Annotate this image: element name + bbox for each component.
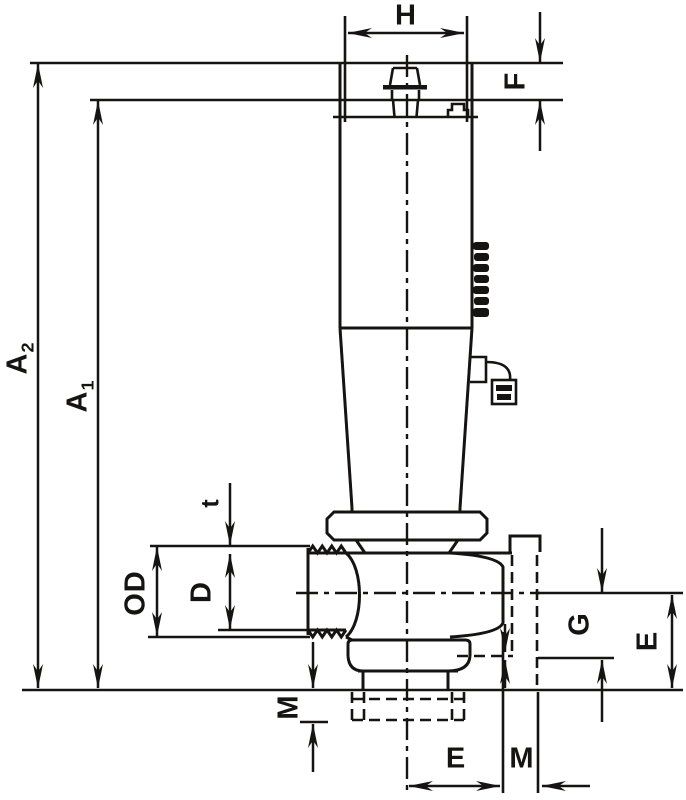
technical-drawing-page: H F A2 A1 t OD D M G E E M [0,0,686,800]
technical-drawing [0,0,686,800]
left-port-outline [308,546,360,637]
hidden-lines [352,555,537,720]
left-port-bulge [346,553,360,637]
dim-label-d: D [188,581,217,603]
dim-label-a2: A2 [4,342,37,375]
dim-label-f: F [502,72,531,91]
bottom-connection-outline [348,640,470,690]
right-port-bulge [450,553,503,637]
dim-label-h: H [395,2,417,31]
handle-embossed-marking [473,242,489,317]
cap-marking-box [448,104,468,117]
dim-label-t: t [199,498,224,507]
dim-label-e-right: E [634,631,663,651]
dim-label-a1: A1 [64,380,97,413]
dim-label-od: OD [122,570,151,616]
dim-label-m-left: M [275,694,304,719]
stem-cap-detail [383,68,468,117]
top-tab [510,536,540,552]
extension-lines [22,16,683,793]
dim-label-e-bottom: E [446,745,466,774]
handle-tab-detail [470,357,516,404]
dim-label-g: G [566,612,595,636]
dim-label-m-bottom: M [509,745,534,774]
